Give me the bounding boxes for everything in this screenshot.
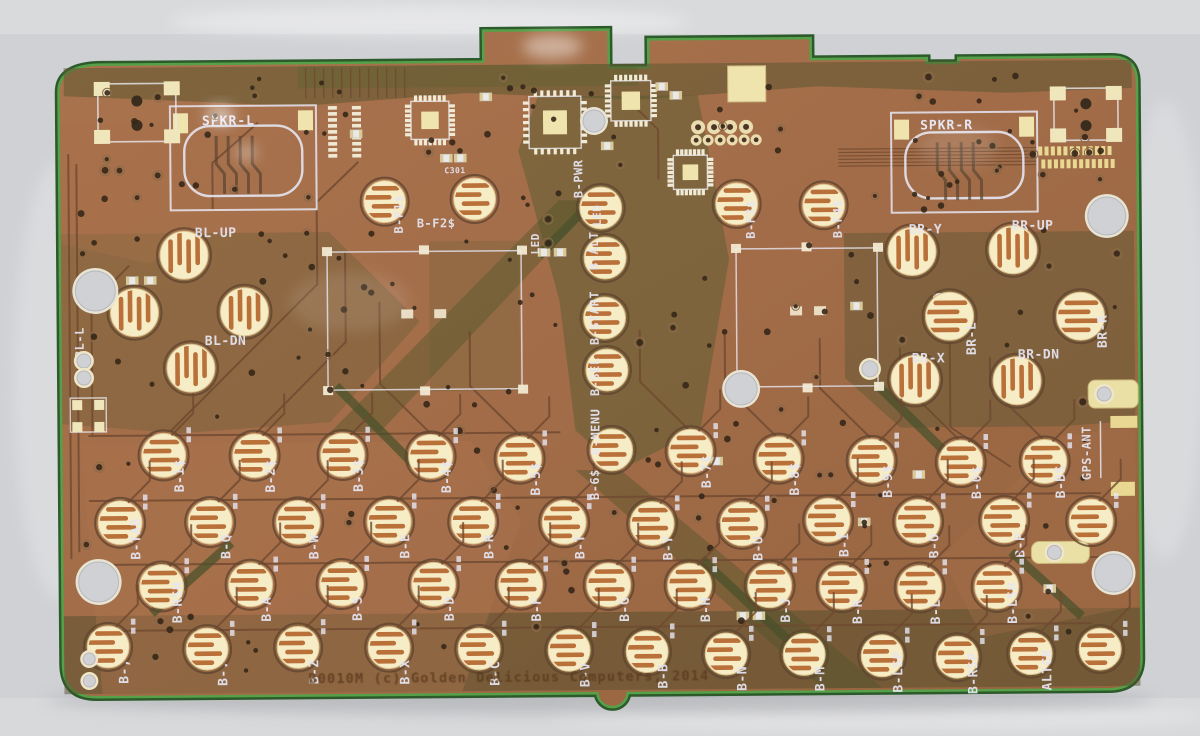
- smd-passive: [126, 277, 138, 285]
- silk-label-B-LSP: B-LSP: [891, 651, 906, 693]
- silk-label-B-F3$: B-F3$: [744, 200, 758, 239]
- silk-label-BR-DN: BR-DN: [1018, 347, 1060, 362]
- silk-label-B-.: B-.: [216, 661, 231, 686]
- silk-label-B-ALT: B-ALT: [587, 231, 601, 270]
- pcb-photo-svg: SPKR-LSPKR-RB-1$B-2$B-3$B-4$B-5$B-7$B-8$…: [0, 0, 1200, 736]
- silk-label-C301: C301: [444, 166, 465, 175]
- silk-label-BR-R: BR-R: [1096, 315, 1111, 348]
- silk-label-B-LSH: B-LSH: [1006, 582, 1021, 624]
- silk-label-B-W: B-W: [307, 534, 322, 559]
- silk-label-BL-DN: BL-DN: [205, 334, 247, 349]
- silk-label-B-S: B-S: [351, 596, 366, 621]
- smd-passive: [850, 302, 862, 310]
- mounting-hole: [75, 559, 121, 605]
- smd-passive: [144, 276, 156, 284]
- silk-label-B-RSP: B-RSP: [966, 652, 981, 694]
- silk-label-B-4$: B-4$: [440, 460, 455, 493]
- silk-label-B-0$: B-0$: [970, 466, 985, 499]
- smd-passive: [454, 154, 466, 162]
- smd-passive: [480, 93, 492, 101]
- silk-label-B-N: B-N: [735, 666, 750, 691]
- plated-hole: [1094, 384, 1114, 404]
- plated-hole: [859, 358, 881, 380]
- plated-hole: [74, 368, 94, 388]
- smd-passive: [440, 154, 452, 162]
- smd-passive: [601, 142, 613, 150]
- smd-passive: [913, 470, 925, 478]
- silk-label-BR-UP: BR-UP: [1012, 218, 1054, 233]
- silk-label-B-,: B-,: [117, 659, 132, 684]
- silk-label-BL-UP: BL-UP: [195, 226, 237, 241]
- keypad-B-F2$: [450, 175, 498, 223]
- silk-label-B-7$: B-7$: [700, 455, 715, 488]
- silk-label-B-SEL: B-SEL: [588, 357, 602, 396]
- silk-label-B-U: B-U: [751, 536, 766, 561]
- plated-hole: [1044, 542, 1064, 562]
- silk-label-B-1$: B-1$: [173, 459, 188, 492]
- smd-passive: [554, 248, 566, 256]
- silk-label-ALTGR: ALTGR: [1040, 649, 1055, 691]
- silk-label-B-K: B-K: [851, 599, 866, 624]
- silk-label-B-F4$: B-F4$: [831, 199, 845, 238]
- silk-label-B-D: B-D: [443, 596, 458, 621]
- etched-copyright-text: B0010M (c) Golden Delicious Computers, 2…: [308, 668, 709, 687]
- plated-hole: [80, 650, 98, 668]
- smd-passive: [670, 91, 682, 99]
- silk-label-B-L: B-L: [929, 599, 944, 624]
- keypad-pad: [217, 285, 271, 339]
- keypad-pad: [164, 341, 218, 395]
- silk-label-B-9$: B-9$: [881, 464, 896, 497]
- silk-label-B-START: B-START: [587, 291, 601, 345]
- silk-label-B-A: B-A: [260, 597, 275, 622]
- silk-label-B-I: B-I: [837, 532, 852, 557]
- mounting-hole: [580, 107, 608, 135]
- mounting-hole: [1085, 194, 1129, 238]
- silk-label-B-MENU: B-MENU: [588, 409, 602, 455]
- silk-label-B-3$: B-3$: [352, 459, 367, 492]
- silk-label-B-F: B-F: [530, 596, 545, 621]
- silk-label-B-H: B-H: [699, 597, 714, 622]
- silk-label-BR-X: BR-X: [912, 351, 945, 366]
- silk-label-B-G: B-G: [618, 597, 633, 622]
- keypad-pad: [1066, 496, 1116, 546]
- plated-hole: [80, 672, 98, 690]
- silk-label-B-J: B-J: [779, 598, 794, 623]
- silk-label-B-TAB: B-TAB: [129, 518, 144, 560]
- silk-label-B-2$: B-2$: [264, 459, 279, 492]
- smd-passive: [350, 130, 362, 138]
- pcb-board: SPKR-LSPKR-RB-1$B-2$B-3$B-4$B-5$B-7$B-8$…: [59, 27, 1140, 710]
- silk-label-B-BS: B-BS: [1054, 465, 1069, 498]
- silk-label-LED: LED: [591, 205, 604, 226]
- silk-label-BR-L: BR-L: [965, 322, 980, 355]
- silk-label-B-M: B-M: [813, 666, 828, 691]
- mounting-hole: [1091, 551, 1135, 595]
- silk-label-B-6$: B-6$: [588, 469, 602, 500]
- silk-label-B-Y: B-Y: [661, 535, 676, 560]
- pcb-photo: SPKR-LSPKR-RB-1$B-2$B-3$B-4$B-5$B-7$B-8$…: [0, 0, 1200, 736]
- silk-label-B-R: B-R: [482, 534, 497, 559]
- silk-label-B-T: B-T: [573, 534, 588, 559]
- silk-label-B-E: B-E: [398, 533, 413, 558]
- silk-label-B-F1$: B-F1$: [392, 195, 406, 234]
- mounting-hole: [722, 370, 760, 408]
- silk-label-B-F2$: B-F2$: [417, 216, 456, 230]
- silk-label-LED: LED: [529, 233, 542, 254]
- silk-label-B-PWR: B-PWR: [571, 159, 585, 198]
- silk-label-B-8$: B-8$: [788, 462, 803, 495]
- silk-label-BR-Y: BR-Y: [909, 222, 942, 237]
- smd-passive: [656, 82, 668, 90]
- silk-label-B-RSH: B-RSH: [171, 582, 186, 624]
- mounting-hole: [72, 268, 118, 314]
- silk-label-B-5$: B-5$: [529, 462, 544, 495]
- keypad-pad: [1076, 625, 1124, 673]
- silk-label-B-Q: B-Q: [219, 534, 234, 559]
- silk-label-GPS-ANT: GPS-ANT: [1079, 426, 1093, 480]
